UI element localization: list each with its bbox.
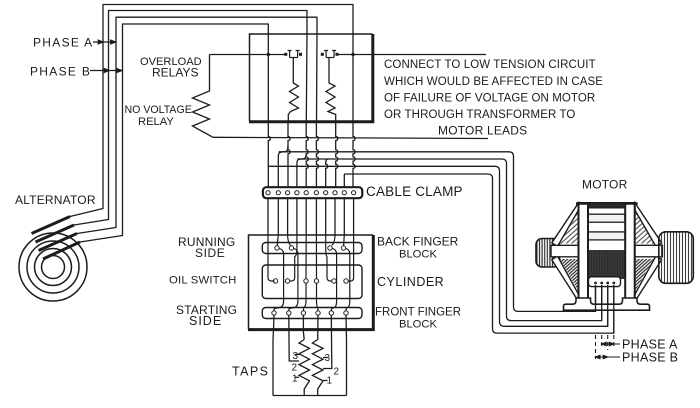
svg-text:CABLE CLAMP: CABLE CLAMP <box>366 184 463 199</box>
svg-text:PHASE A: PHASE A <box>622 338 678 352</box>
svg-text:ALTERNATOR: ALTERNATOR <box>15 193 96 207</box>
svg-text:PHASE A: PHASE A <box>33 36 93 50</box>
svg-text:NO VOLTAGE: NO VOLTAGE <box>125 104 192 116</box>
svg-text:OF FAILURE OF VOLTAGE ON MOTOR: OF FAILURE OF VOLTAGE ON MOTOR <box>384 93 595 105</box>
svg-text:FRONT FINGER: FRONT FINGER <box>375 307 461 319</box>
svg-text:BLOCK: BLOCK <box>399 319 437 331</box>
svg-text:TAPS: TAPS <box>232 365 269 379</box>
svg-text:BACK FINGER: BACK FINGER <box>377 235 459 249</box>
svg-text:RELAYS: RELAYS <box>152 66 198 80</box>
svg-text:SIDE: SIDE <box>195 246 225 260</box>
svg-text:BLOCK: BLOCK <box>399 249 437 261</box>
svg-text:WHICH WOULD BE AFFECTED IN CAS: WHICH WOULD BE AFFECTED IN CASE <box>384 76 603 88</box>
svg-text:OR THROUGH TRANSFORMER TO: OR THROUGH TRANSFORMER TO <box>384 109 575 121</box>
svg-text:RELAY: RELAY <box>138 116 174 128</box>
svg-text:MOTOR: MOTOR <box>582 178 628 192</box>
svg-text:3: 3 <box>325 353 331 364</box>
svg-text:PHASE B: PHASE B <box>30 65 91 79</box>
svg-text:2: 2 <box>334 367 340 378</box>
svg-text:OIL SWITCH: OIL SWITCH <box>169 275 236 287</box>
svg-text:PHASE B: PHASE B <box>622 351 678 365</box>
svg-text:3: 3 <box>293 351 299 362</box>
svg-text:2: 2 <box>292 363 298 374</box>
svg-text:CONNECT TO LOW TENSION CIRCUIT: CONNECT TO LOW TENSION CIRCUIT <box>384 59 596 71</box>
svg-text:MOTOR LEADS: MOTOR LEADS <box>438 124 527 138</box>
svg-text:1: 1 <box>327 376 333 387</box>
svg-text:1: 1 <box>292 374 298 385</box>
svg-text:SIDE: SIDE <box>189 314 222 328</box>
svg-text:CYLINDER: CYLINDER <box>377 275 444 289</box>
